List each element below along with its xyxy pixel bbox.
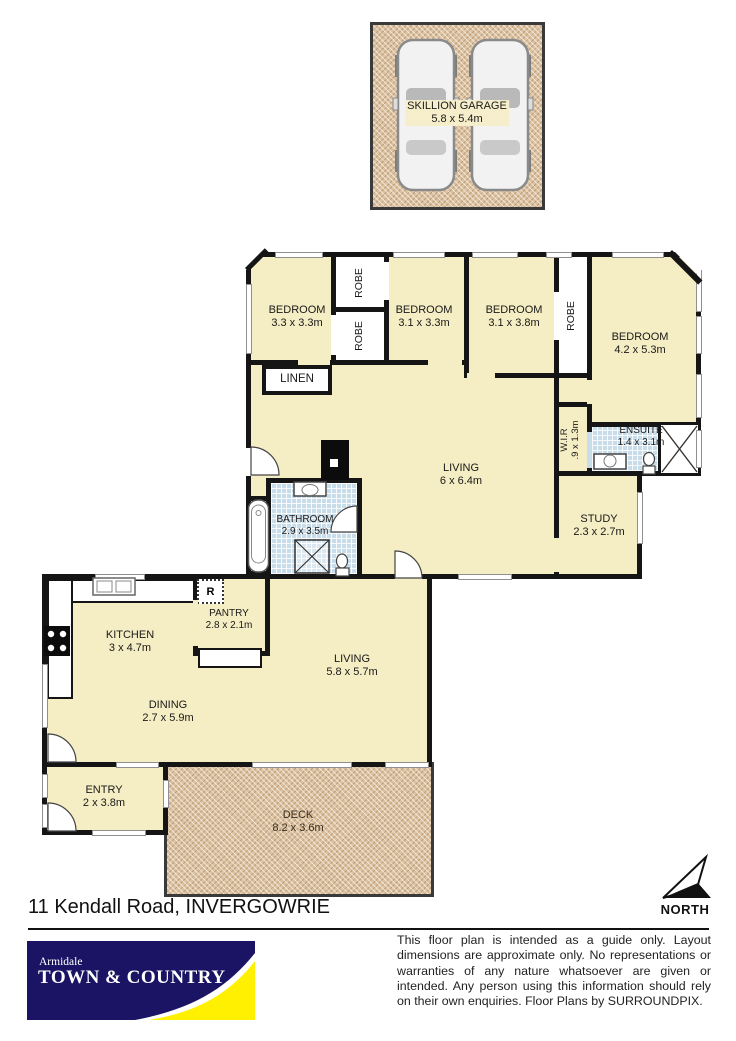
- room-label-bedroom-1: BEDROOM 3.3 x 3.3m: [269, 304, 326, 330]
- room-label-bedroom-4: BEDROOM 4.2 x 5.3m: [612, 331, 669, 357]
- room-label-garage: SKILLION GARAGE 5.8 x 5.4m: [405, 100, 509, 126]
- robe-bottom-opening: [331, 315, 336, 355]
- door-opening-study: [554, 538, 559, 572]
- kitchen-counter-left: [47, 579, 73, 699]
- agency-logo-name: TOWN & COUNTRY: [38, 967, 226, 989]
- divider-line: [28, 928, 709, 930]
- disclaimer-text: This floor plan is intended as a guide o…: [397, 933, 711, 1009]
- door-opening-bedroom-4: [587, 380, 592, 404]
- room-label-linen: LINEN: [280, 373, 314, 387]
- room-label-entry: ENTRY 2 x 3.8m: [83, 784, 125, 810]
- room-label-pantry: PANTRY 2.8 x 2.1m: [206, 608, 253, 632]
- room-label-kitchen: KITCHEN 3 x 4.7m: [106, 629, 154, 655]
- window: [92, 830, 146, 836]
- room-label-robe-bottom: ROBE: [353, 321, 365, 351]
- property-address: 11 Kendall Road, INVERGOWRIE: [28, 896, 330, 919]
- room-label-robe-right: ROBE: [565, 301, 577, 331]
- window: [275, 252, 323, 258]
- door-opening-entry: [116, 762, 159, 768]
- door-opening-living-junction: [395, 574, 422, 579]
- window: [637, 492, 643, 544]
- window: [458, 574, 512, 580]
- door-opening-pantry: [193, 600, 198, 646]
- room-label-bathroom: BATHROOM 2.9 x 3.5m: [276, 514, 333, 538]
- room-label-bedroom-2: BEDROOM 3.1 x 3.3m: [396, 304, 453, 330]
- ensuite-shower: [658, 422, 701, 476]
- window: [696, 374, 702, 418]
- window: [612, 252, 664, 258]
- room-label-wir: W.I.R .9 x 1.3m: [560, 420, 582, 459]
- room-label-deck: DECK 8.2 x 3.6m: [272, 809, 323, 835]
- door-opening-bedroom-3: [467, 373, 495, 378]
- room-label-bedroom-3: BEDROOM 3.1 x 3.8m: [486, 304, 543, 330]
- kitchen-bench: [198, 648, 262, 668]
- window: [696, 430, 702, 468]
- window: [246, 284, 252, 354]
- window: [42, 774, 48, 798]
- fridge-box: R: [197, 579, 224, 604]
- window: [393, 252, 445, 258]
- robe-top-opening: [384, 262, 389, 300]
- window: [95, 574, 145, 580]
- room-label-ensuite: ENSUITE 1.4 x 3.1m: [618, 425, 665, 449]
- window: [546, 252, 572, 258]
- north-label: NORTH: [656, 902, 714, 917]
- window: [42, 664, 48, 728]
- door-opening-bedroom-1: [298, 360, 330, 365]
- robe-right-opening: [554, 292, 559, 340]
- room-label-living-upper: LIVING 6 x 6.4m: [440, 462, 482, 488]
- window: [472, 252, 518, 258]
- window: [42, 804, 48, 828]
- agency-logo: Armidale TOWN & COUNTRY: [27, 941, 255, 1020]
- window: [696, 316, 702, 354]
- door-opening-living-left: [246, 448, 251, 476]
- room-label-study: STUDY 2.3 x 2.7m: [573, 513, 624, 539]
- room-label-robe-top: ROBE: [353, 268, 365, 298]
- fridge-label: R: [207, 586, 215, 598]
- north-arrow-icon: [663, 857, 711, 898]
- window: [163, 780, 169, 808]
- door-opening-ensuite: [587, 432, 592, 468]
- door-opening-bedroom-2: [428, 360, 462, 365]
- sliding-door: [385, 762, 429, 768]
- room-label-dining: DINING 2.7 x 5.9m: [142, 699, 193, 725]
- room-label-living-lower: LIVING 5.8 x 5.7m: [326, 653, 377, 679]
- bath-tub-nook: [246, 496, 271, 576]
- floorplan-page: R: [0, 0, 736, 1041]
- sliding-door: [252, 762, 352, 768]
